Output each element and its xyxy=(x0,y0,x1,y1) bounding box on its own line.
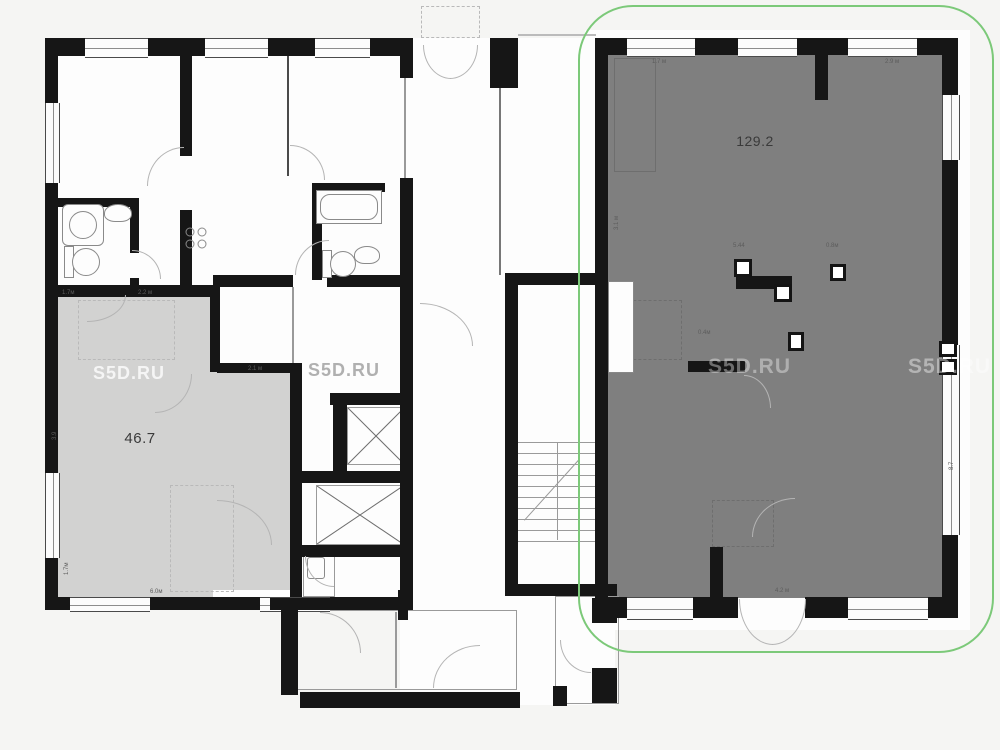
window-segment xyxy=(45,473,60,558)
canopy-outline xyxy=(421,6,480,38)
wall-segment xyxy=(333,405,347,471)
wall-segment xyxy=(148,38,205,56)
partition-line xyxy=(499,88,501,275)
wall-segment xyxy=(268,38,315,56)
wall-segment xyxy=(300,692,520,708)
wall-segment xyxy=(180,56,192,156)
entrance-lobby xyxy=(282,610,517,690)
wall-segment xyxy=(398,590,408,620)
watermark-text: S5D.RU xyxy=(308,360,380,381)
window-segment xyxy=(85,38,148,58)
wall-segment xyxy=(298,471,413,483)
wall-segment xyxy=(150,597,260,610)
shower-icon xyxy=(69,211,97,239)
wall-segment xyxy=(400,38,413,78)
window-segment xyxy=(205,38,268,58)
wall-segment xyxy=(370,38,400,56)
stairs-divider xyxy=(557,442,558,540)
bathtub-icon xyxy=(320,194,378,220)
sink-icon xyxy=(104,204,132,222)
dimension-label: 1.7м xyxy=(64,563,70,575)
partition-line xyxy=(292,287,294,363)
window-segment xyxy=(70,597,150,612)
wall-segment xyxy=(553,686,567,706)
dimension-label: 2.2 м xyxy=(138,290,152,296)
wall-segment xyxy=(210,287,220,372)
toilet-icon xyxy=(330,251,356,277)
partition-line xyxy=(287,56,289,176)
wall-segment xyxy=(45,597,70,610)
wall-segment xyxy=(281,600,298,695)
toilet-icon xyxy=(72,248,100,276)
wall-segment xyxy=(505,273,518,588)
door-opening-line xyxy=(404,78,406,178)
wall-segment xyxy=(213,275,293,287)
sink-icon xyxy=(354,246,380,264)
dimension-label: 1.7м xyxy=(62,290,74,296)
elevator-shaft-icon xyxy=(347,407,405,465)
dimension-label: 2.1 м xyxy=(248,366,262,372)
window-segment xyxy=(315,38,370,58)
dimension-label: 3.9 xyxy=(52,432,58,440)
wall-segment xyxy=(327,275,400,287)
floor-plan: S5D.RU S5D.RU S5D.RU S5D.RU xyxy=(0,0,1000,750)
wall-segment xyxy=(490,38,518,88)
wall-segment xyxy=(45,38,58,103)
watermark-text: S5D.RU xyxy=(93,363,165,384)
stove-icon xyxy=(184,226,208,250)
wall-segment xyxy=(330,393,413,405)
wall-segment xyxy=(592,668,617,703)
wall-segment xyxy=(45,183,58,473)
dimension-label: 6.0м xyxy=(150,589,162,595)
unit-highlight-outline xyxy=(578,5,994,653)
elevator-shaft-icon xyxy=(316,485,404,545)
window-segment xyxy=(45,103,60,183)
area-label-46-7: 46.7 xyxy=(100,430,180,447)
partition-line xyxy=(395,612,397,688)
